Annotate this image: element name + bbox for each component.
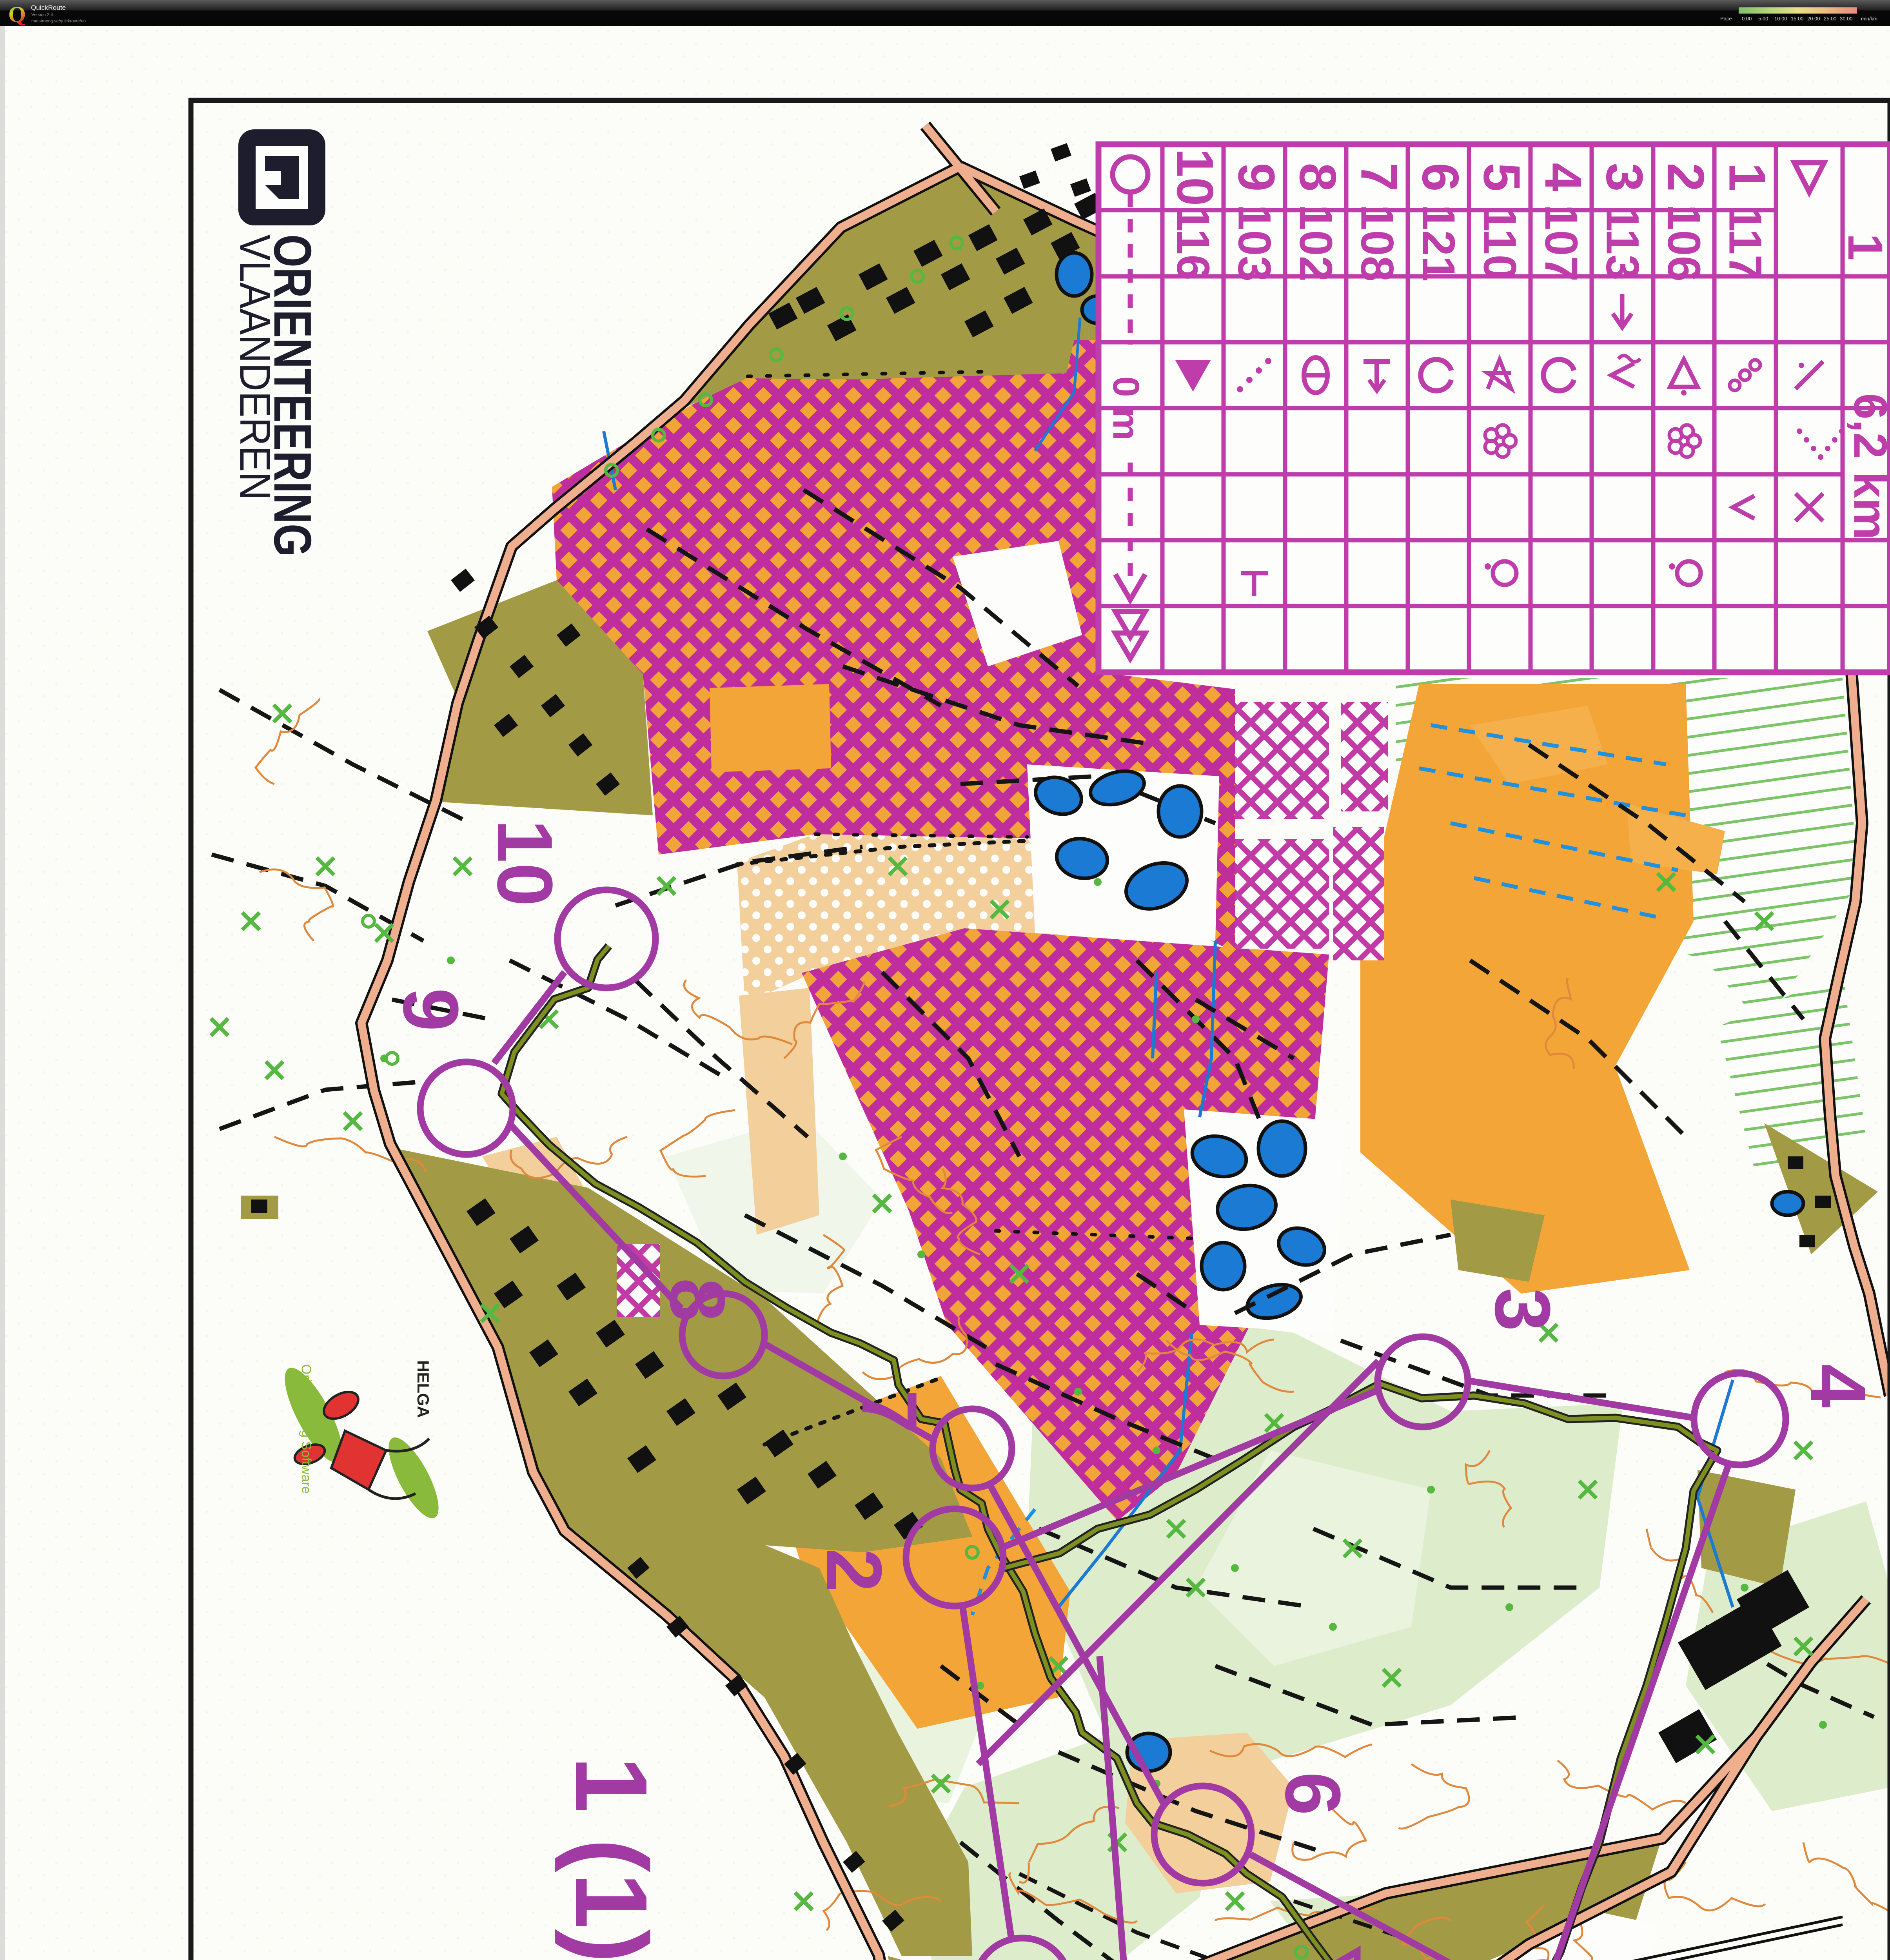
svg-text:102: 102 [1290, 205, 1342, 282]
svg-text:Orienteering Software: Orienteering Software [299, 1364, 314, 1494]
svg-text:25:00: 25:00 [1824, 16, 1837, 22]
svg-text:6,2 km: 6,2 km [1844, 393, 1890, 540]
svg-text:3: 3 [1479, 1288, 1566, 1331]
svg-text:Q: Q [8, 2, 26, 27]
svg-text:108: 108 [1351, 205, 1403, 282]
svg-text:9: 9 [387, 988, 474, 1031]
svg-text:6: 6 [1269, 1772, 1356, 1815]
svg-text:30:00: 30:00 [1840, 16, 1853, 22]
svg-text:4: 4 [1534, 163, 1592, 191]
svg-text:QuickRoute: QuickRoute [31, 4, 66, 11]
svg-text:1: 1 [554, 1756, 668, 1813]
svg-text:117: 117 [1719, 206, 1771, 280]
svg-text:1: 1 [1838, 233, 1890, 261]
svg-text:5: 5 [1473, 163, 1531, 191]
svg-text:matstroeng.se/quickroute/en: matstroeng.se/quickroute/en [31, 19, 86, 24]
svg-text:0 m: 0 m [1105, 376, 1147, 441]
svg-text:15:00: 15:00 [1791, 16, 1804, 22]
svg-text:min/km: min/km [1861, 16, 1877, 22]
svg-text:121: 121 [1413, 205, 1464, 282]
svg-text:1: 1 [1719, 163, 1776, 191]
svg-text:9: 9 [1228, 163, 1285, 191]
svg-text:10: 10 [481, 819, 568, 906]
svg-text:Version 2.4: Version 2.4 [31, 13, 53, 17]
svg-text:Pace: Pace [1720, 16, 1732, 22]
svg-text:HELGA: HELGA [414, 1360, 432, 1418]
svg-text:VLAANDEREN: VLAANDEREN [231, 234, 279, 500]
svg-text:4: 4 [1794, 1364, 1882, 1408]
svg-text:103: 103 [1229, 205, 1280, 282]
svg-text:110: 110 [1474, 206, 1526, 280]
svg-text:10:00: 10:00 [1774, 16, 1787, 22]
svg-text:5:00: 5:00 [1758, 16, 1768, 22]
svg-text:8: 8 [654, 1278, 741, 1321]
svg-text:113: 113 [1597, 206, 1649, 280]
svg-text:2: 2 [810, 1548, 898, 1592]
svg-text:0:00: 0:00 [1742, 16, 1752, 22]
svg-text:107: 107 [1535, 205, 1587, 282]
svg-text:7: 7 [846, 1390, 933, 1433]
svg-text:20:00: 20:00 [1807, 16, 1820, 22]
svg-text:6: 6 [1412, 163, 1469, 191]
svg-text:106: 106 [1658, 205, 1710, 282]
svg-text:2: 2 [1657, 163, 1715, 191]
svg-text:7: 7 [1351, 163, 1408, 191]
svg-text:10: 10 [1166, 149, 1224, 206]
svg-text:(1): (1) [554, 1838, 668, 1960]
svg-text:3: 3 [1596, 163, 1654, 191]
svg-text:8: 8 [1289, 163, 1347, 191]
svg-text:116: 116 [1167, 206, 1219, 280]
